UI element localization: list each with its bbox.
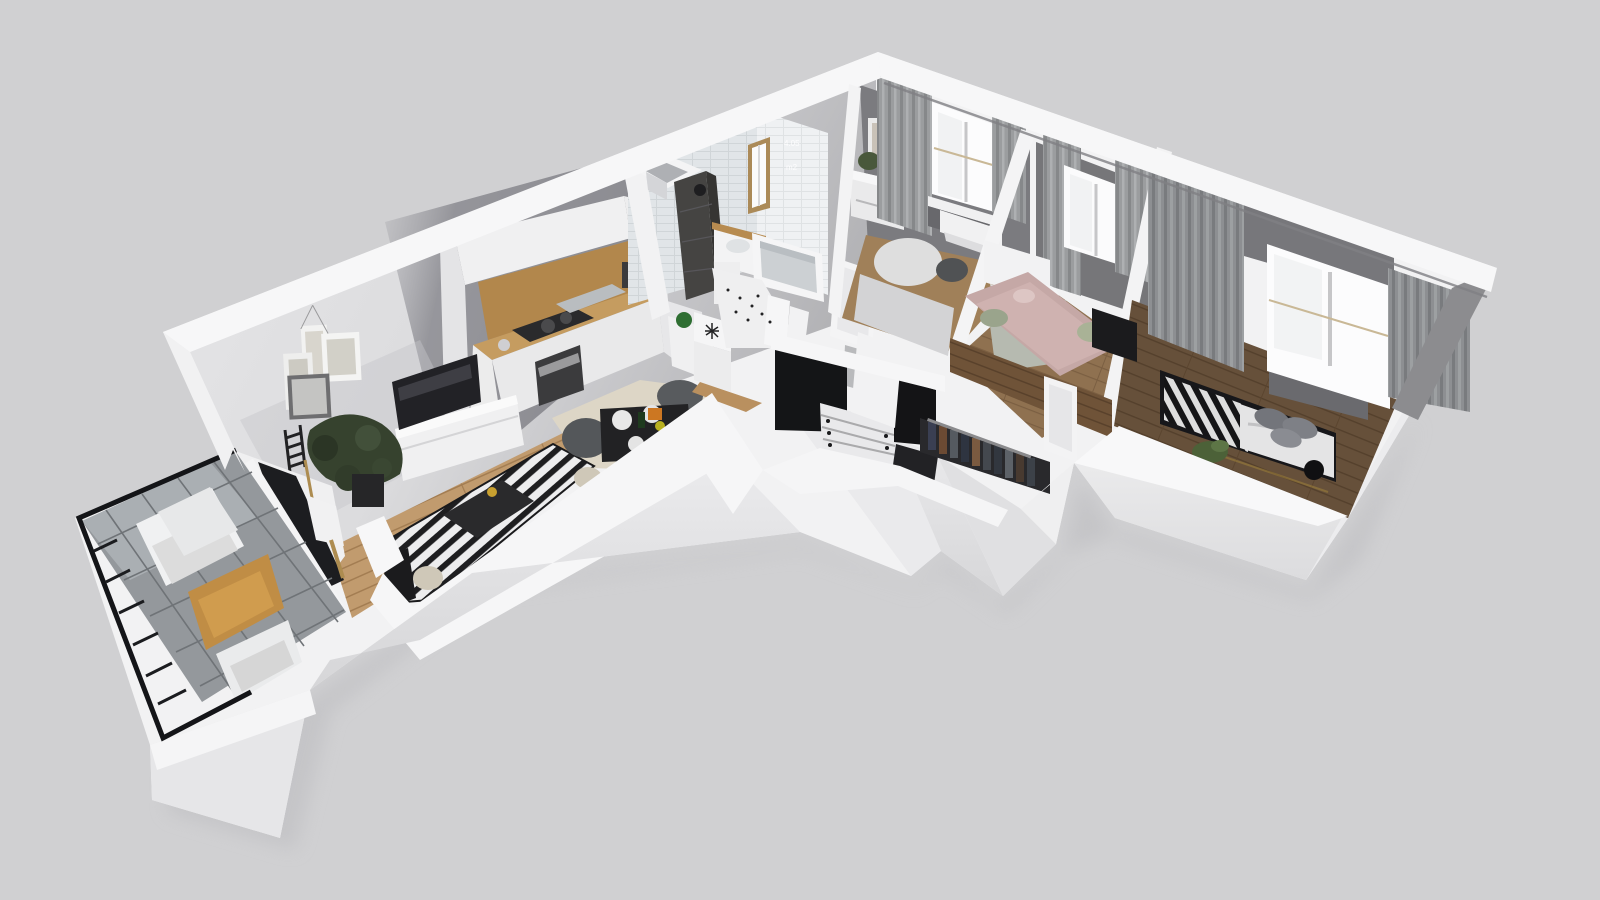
svg-text:4.05: 4.05: [784, 139, 800, 148]
svg-text:m2: m2: [786, 163, 798, 172]
